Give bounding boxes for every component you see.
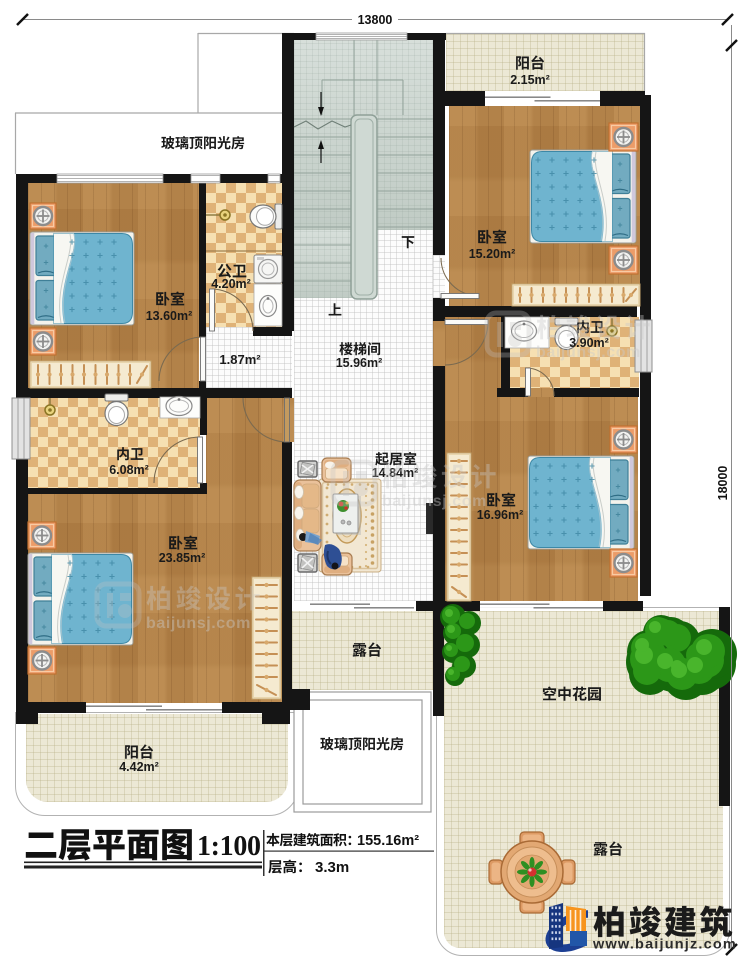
svg-text:1.87m²: 1.87m² bbox=[219, 352, 261, 367]
svg-text:13.60m²: 13.60m² bbox=[146, 309, 193, 323]
svg-text:13800: 13800 bbox=[358, 13, 393, 27]
svg-text:23.85m²: 23.85m² bbox=[159, 551, 206, 565]
svg-text:15.96m²: 15.96m² bbox=[336, 356, 383, 370]
svg-text:4.42m²: 4.42m² bbox=[119, 760, 159, 774]
svg-text:www.baijunjz.com: www.baijunjz.com bbox=[592, 937, 737, 952]
svg-text:2.15m²: 2.15m² bbox=[510, 73, 550, 87]
svg-text:baijunsj.com: baijunsj.com bbox=[146, 615, 251, 632]
svg-text:3.3m: 3.3m bbox=[315, 859, 349, 876]
svg-text:18000: 18000 bbox=[716, 466, 730, 501]
svg-text:baijunsj.com: baijunsj.com bbox=[536, 344, 641, 361]
svg-text:155.16m²: 155.16m² bbox=[357, 833, 419, 849]
svg-text:baijunsj.com: baijunsj.com bbox=[382, 493, 487, 510]
svg-text:6.08m²: 6.08m² bbox=[109, 463, 149, 477]
svg-text:4.20m²: 4.20m² bbox=[211, 277, 251, 291]
svg-text:16.96m²: 16.96m² bbox=[477, 508, 524, 522]
svg-text:1:100: 1:100 bbox=[197, 831, 261, 862]
svg-text:15.20m²: 15.20m² bbox=[469, 247, 516, 261]
